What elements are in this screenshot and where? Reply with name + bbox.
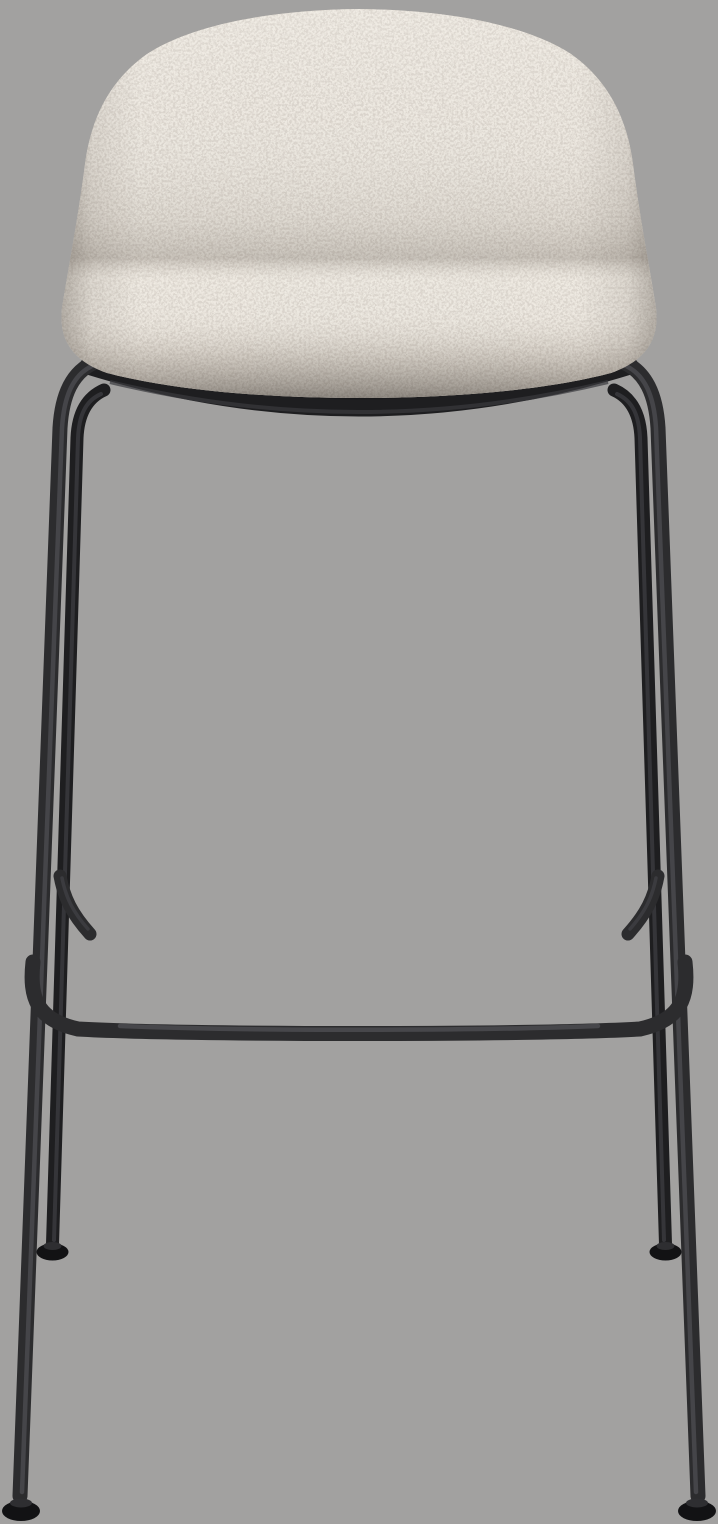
stool-product-image (0, 0, 718, 1524)
seat-shell (50, 0, 668, 406)
rear-left-glide-cap (44, 1242, 62, 1250)
seat-shading-sides (50, 0, 668, 406)
product-image-canvas (0, 0, 718, 1524)
front-left-glide-cap (10, 1499, 32, 1508)
